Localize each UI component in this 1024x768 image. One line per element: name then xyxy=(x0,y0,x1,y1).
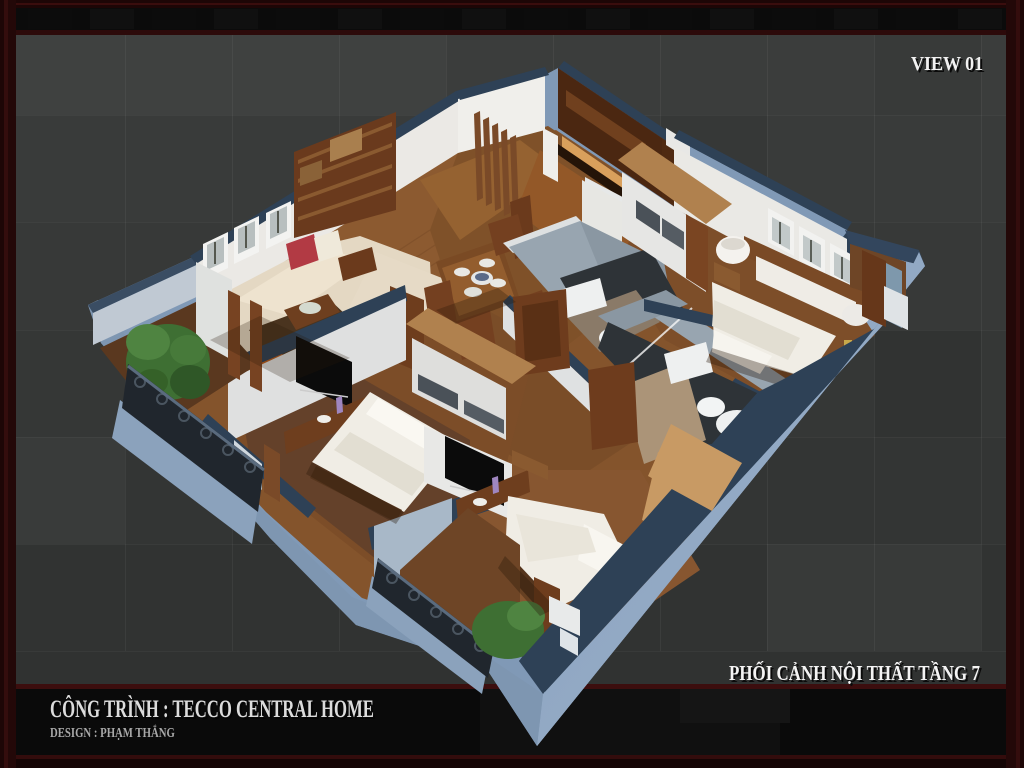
svg-text:DESIGN : PHẠM THẮNG: DESIGN : PHẠM THẮNG xyxy=(50,724,175,741)
svg-text:CÔNG TRÌNH : TECCO CENTRAL HOM: CÔNG TRÌNH : TECCO CENTRAL HOME xyxy=(50,695,374,723)
svg-text:VIEW 01: VIEW 01 xyxy=(911,53,983,75)
svg-text:PHỐI CẢNH NỘI THẤT TẦNG 7: PHỐI CẢNH NỘI THẤT TẦNG 7 xyxy=(729,661,980,685)
